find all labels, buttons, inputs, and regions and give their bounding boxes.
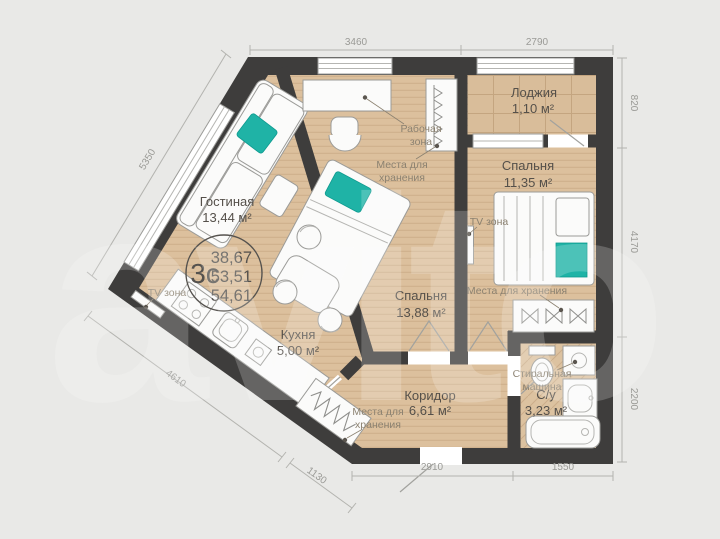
label-loggia-area: 1,10 м² — [512, 101, 555, 116]
svg-text:Рабочая: Рабочая — [400, 123, 441, 135]
dim-bottom-bathroom: 1550 — [552, 462, 575, 473]
watermark: avito — [47, 138, 658, 462]
dim-bottom-hallway: 2910 — [421, 462, 444, 473]
dim-top-living: 3460 — [345, 37, 368, 48]
window-living-top — [318, 58, 392, 74]
window-loggia-top — [477, 58, 574, 74]
dim-right-loggia: 820 — [628, 95, 639, 112]
label-loggia: Лоджия — [511, 85, 557, 100]
floorplan-svg: Гостиная 13,44 м² Кухня 5,00 м² Спальня … — [0, 0, 720, 539]
dim-top-loggia: 2790 — [526, 37, 549, 48]
floorplan-image: Гостиная 13,44 м² Кухня 5,00 м² Спальня … — [0, 0, 720, 539]
